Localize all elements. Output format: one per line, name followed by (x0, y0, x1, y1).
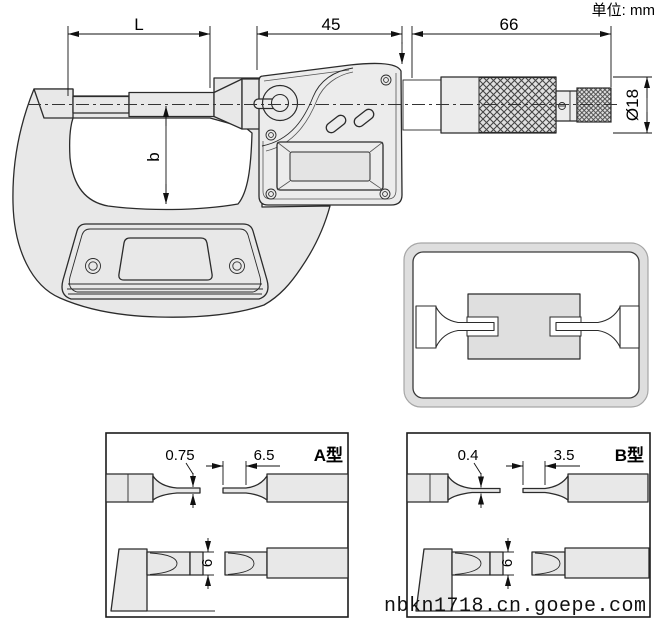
technical-drawing-svg: L 45 66 Ø18 b 单位: mm (0, 0, 658, 622)
dim-L-label: L (134, 15, 143, 34)
panel-b-thickness-label: 0.4 (458, 447, 479, 464)
pad-center-plate (119, 238, 212, 280)
panel-a-tip-length-label: 6.5 (254, 447, 275, 464)
frame-insulator-pad (62, 224, 268, 299)
dimension-b: b (144, 106, 166, 204)
dimension-66: 66 (412, 15, 611, 87)
panel-a-thickness-label: 0.75 (165, 447, 194, 464)
watermark-text: nbkn1718.cn.goepe.com (384, 595, 647, 618)
lcd-display (277, 142, 383, 190)
panel-a-title: A型 (314, 445, 343, 465)
panel-b-tip-length-label: 3.5 (554, 447, 575, 464)
unit-note: 单位: mm (592, 2, 655, 19)
dim-diameter-label: Ø18 (623, 89, 642, 121)
dim-b-label: b (144, 152, 163, 161)
dim-66-label: 66 (500, 15, 519, 34)
display-housing (254, 63, 402, 205)
dimension-L: L (68, 15, 210, 96)
dim-45-label: 45 (322, 15, 341, 34)
panel-b-width-label: 6 (499, 559, 516, 567)
panel-a: A型 0.75 6.5 (106, 433, 348, 617)
panel-b: B型 0.4 3.5 (407, 433, 650, 617)
dimension-45: 45 (257, 15, 402, 70)
panel-a-width-label: 6 (199, 559, 216, 567)
blade-micrometer-figure: L 45 66 Ø18 b 单位: mm (0, 0, 658, 622)
application-inset (404, 243, 648, 407)
dimension-diameter-18: Ø18 (613, 77, 652, 133)
panel-b-title: B型 (615, 445, 644, 465)
